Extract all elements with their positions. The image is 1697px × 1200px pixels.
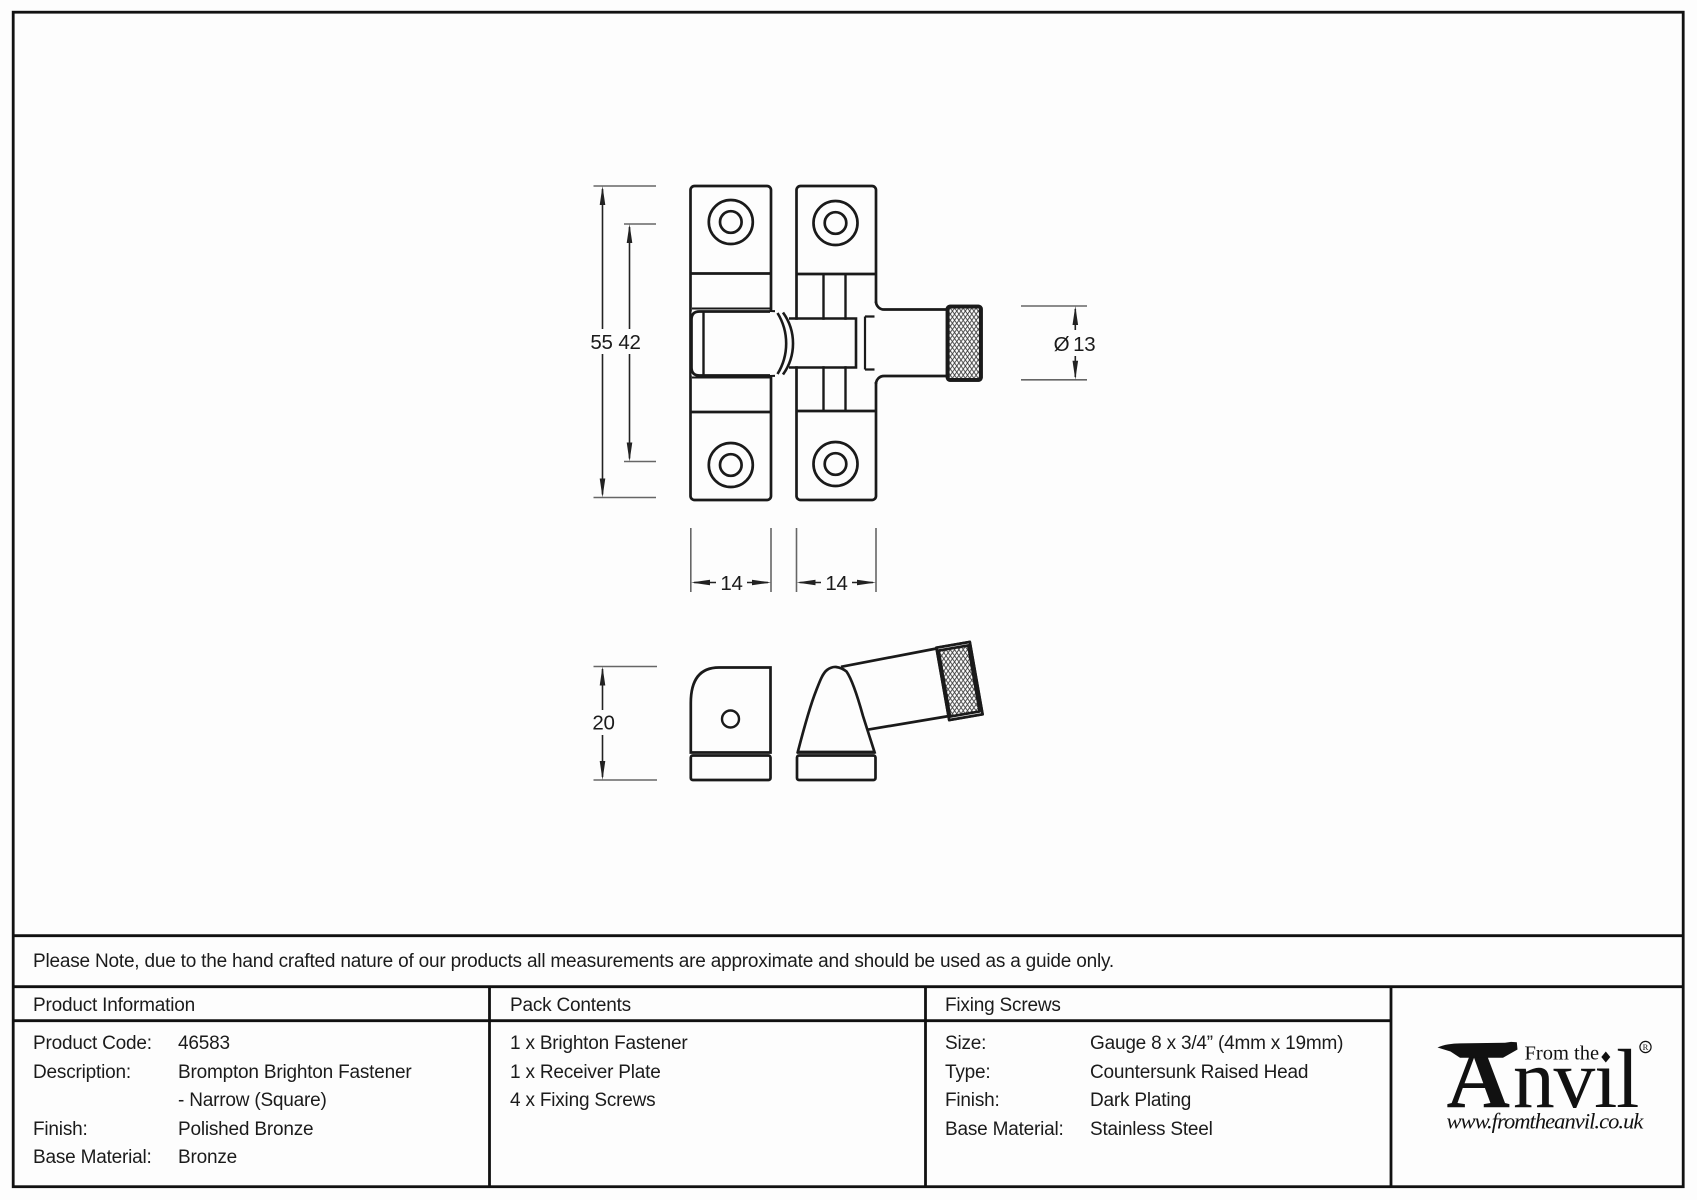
svg-text:Ø 13: Ø 13: [1054, 333, 1096, 356]
svg-text:55: 55: [590, 331, 612, 354]
svg-text:42: 42: [618, 331, 640, 354]
svg-text:www.fromtheanvil.co.uk: www.fromtheanvil.co.uk: [1447, 1108, 1645, 1133]
svg-text:14: 14: [720, 572, 742, 595]
svg-text:20: 20: [592, 712, 614, 735]
svg-text:From the: From the: [1525, 1043, 1600, 1065]
svg-text:14: 14: [825, 572, 847, 595]
svg-text:R: R: [1643, 1042, 1649, 1052]
